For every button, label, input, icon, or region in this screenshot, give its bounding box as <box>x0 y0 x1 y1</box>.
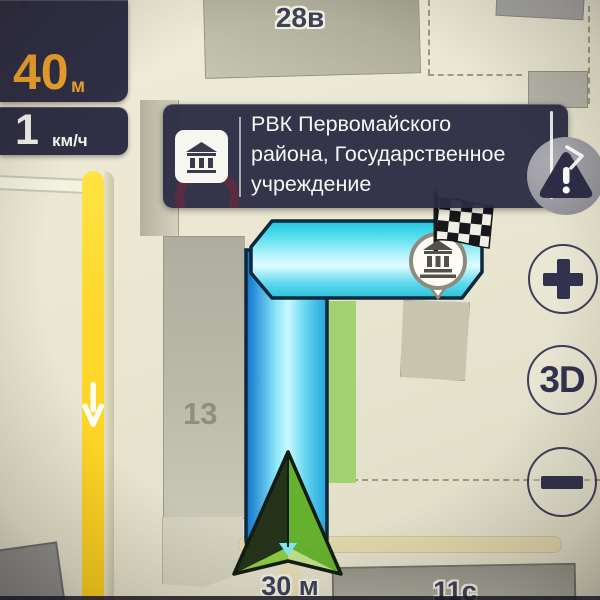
government-building-icon <box>175 130 228 183</box>
view-3d-button[interactable]: 3D <box>527 345 597 415</box>
road-curb <box>104 171 114 600</box>
poi-popup[interactable]: РВК Первомайского района, Государственно… <box>163 104 568 208</box>
distance-panel[interactable]: 40 м <box>0 0 128 102</box>
building-13 <box>163 236 245 519</box>
poi-popup-icon-box <box>175 130 228 183</box>
poi-popup-line: района, Государственное <box>251 139 561 169</box>
poi-popup-line: учреждение <box>251 169 561 199</box>
building-label: 11с <box>412 576 498 600</box>
building-block <box>400 300 470 381</box>
distance-unit: м <box>71 76 85 98</box>
building-block <box>528 71 588 108</box>
building-block <box>0 541 66 600</box>
poi-popup-line: РВК Первомайского <box>251 109 561 139</box>
distance-value: 40 <box>13 47 69 97</box>
boundary-line <box>428 0 430 75</box>
popup-separator <box>239 117 241 197</box>
road <box>0 175 87 194</box>
down-arrow-icon <box>81 381 105 433</box>
zoom-out-button[interactable] <box>527 447 597 517</box>
building-label: 28в <box>255 2 345 34</box>
speed-value: 1 <box>15 109 39 152</box>
boundary-line <box>588 6 590 104</box>
park-area <box>326 301 356 483</box>
view-3d-label: 3D <box>529 359 595 401</box>
route-distance-label: 30 м <box>247 571 333 600</box>
speed-panel[interactable]: 1 км/ч <box>0 107 128 155</box>
speed-unit: км/ч <box>52 131 88 151</box>
building-label: 13 <box>183 396 233 432</box>
poi-popup-title: РВК Первомайского района, Государственно… <box>251 109 561 199</box>
building-block <box>495 0 584 20</box>
warning-triangle-icon[interactable] <box>527 130 600 222</box>
building-block <box>162 517 243 587</box>
map-canvas[interactable]: 28в 13 <box>0 0 600 600</box>
zoom-in-button[interactable] <box>528 244 598 314</box>
boundary-line <box>428 74 522 76</box>
